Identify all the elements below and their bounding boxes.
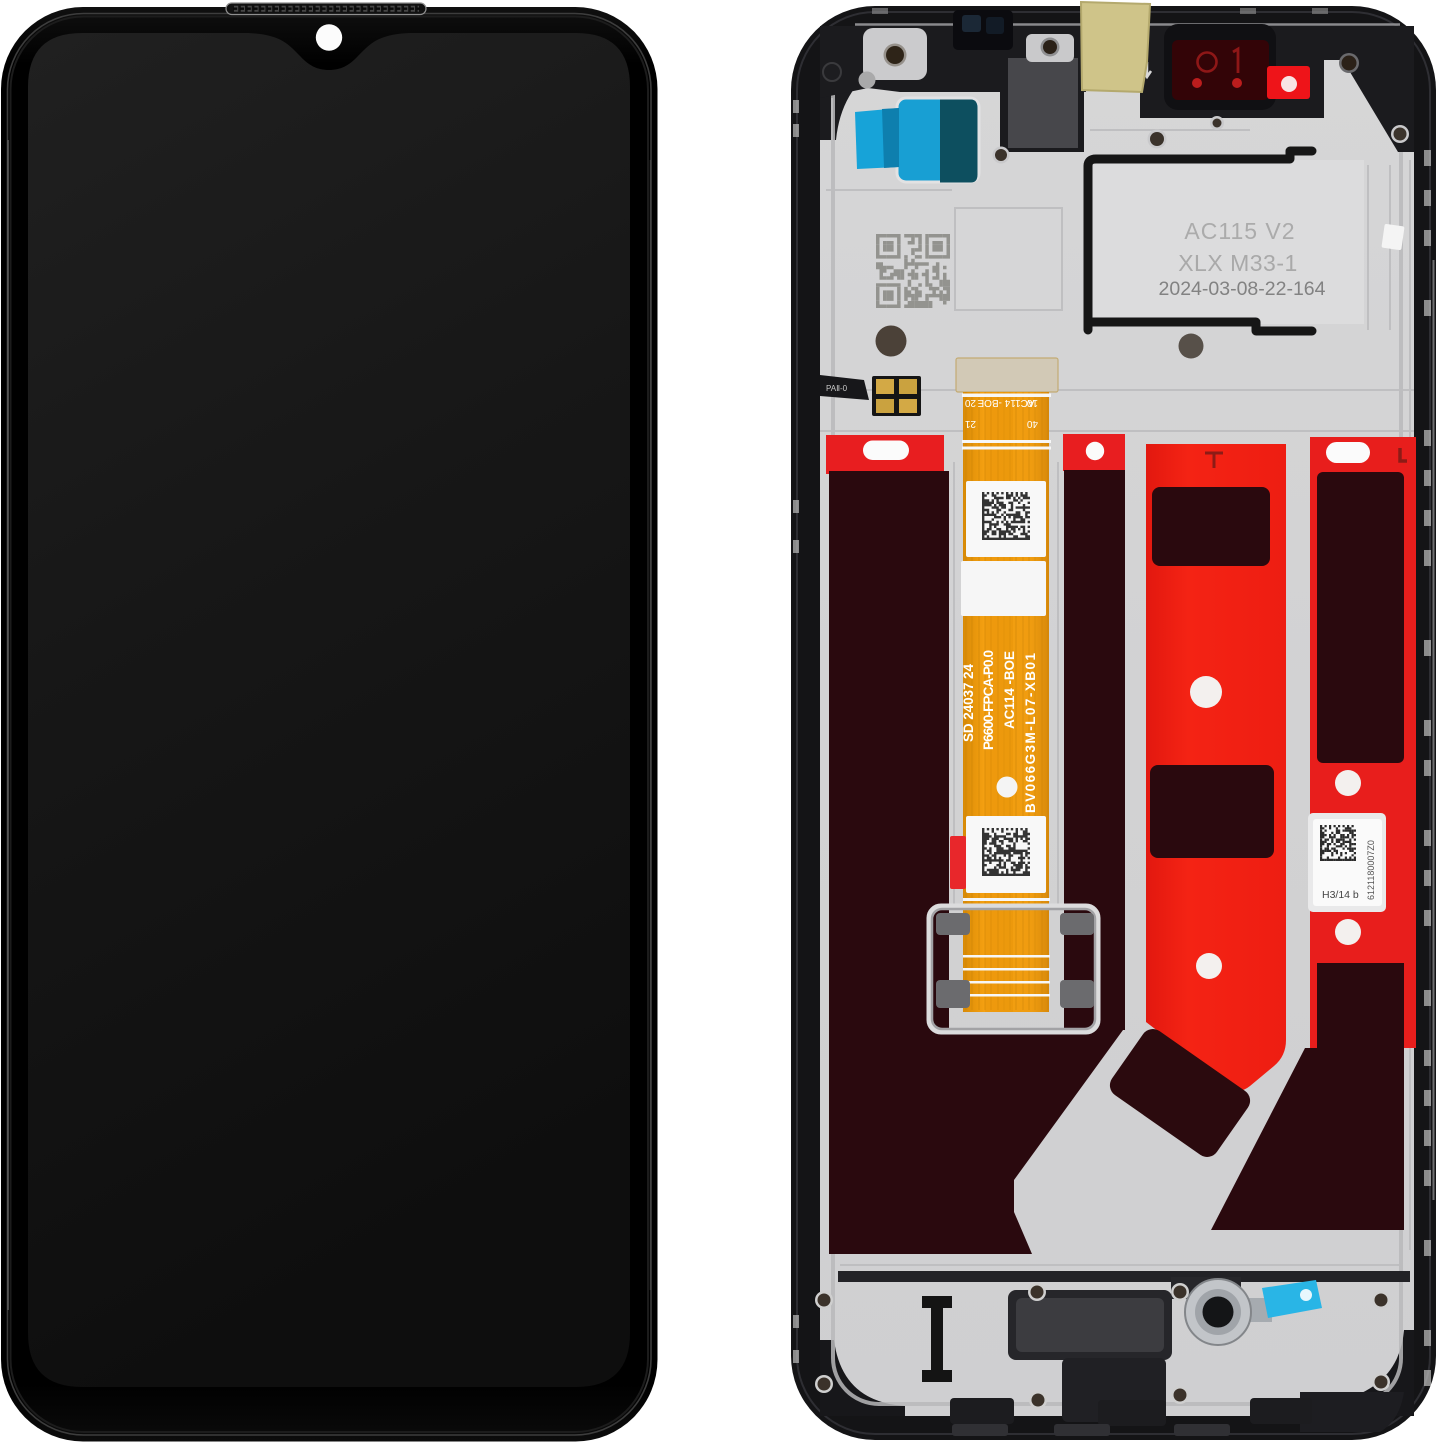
svg-text:10: 10 (1026, 397, 1038, 408)
svg-text:BV066G3M-L07-XB01: BV066G3M-L07-XB01 (1023, 653, 1038, 813)
svg-text:AC115 V2: AC115 V2 (1184, 218, 1295, 244)
svg-text:2024-03-08-22-164: 2024-03-08-22-164 (1159, 278, 1326, 300)
svg-text:AC114 -BOE: AC114 -BOE (977, 397, 1034, 408)
svg-text:SD 24037 24: SD 24037 24 (961, 664, 976, 742)
svg-text:21: 21 (964, 418, 976, 429)
svg-text:AC114 -BOE: AC114 -BOE (1002, 651, 1017, 729)
svg-text:20: 20 (964, 397, 976, 408)
svg-text:P6600-FPCA-P0.0: P6600-FPCA-P0.0 (981, 650, 996, 750)
svg-text:XLX M33-1: XLX M33-1 (1178, 250, 1298, 276)
svg-text:6121180007Z0: 6121180007Z0 (1366, 840, 1376, 900)
svg-text:H3/14 b: H3/14 b (1322, 889, 1359, 901)
svg-text:PAⅡ-0: PAⅡ-0 (826, 384, 848, 393)
svg-text:40: 40 (1026, 418, 1038, 429)
